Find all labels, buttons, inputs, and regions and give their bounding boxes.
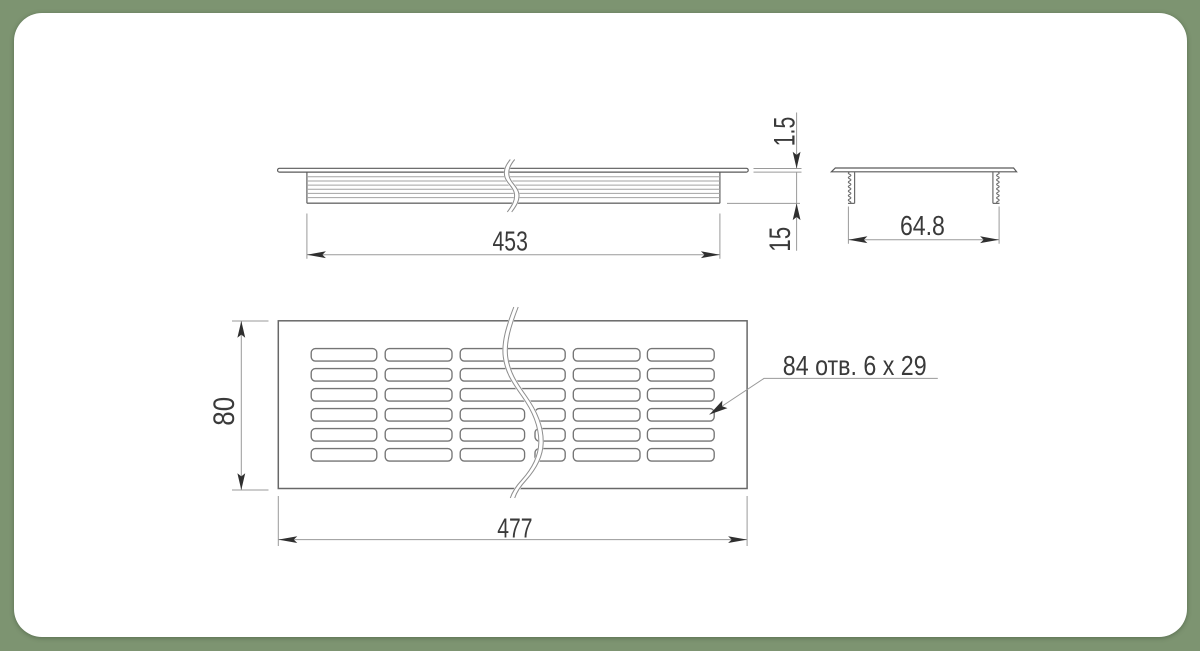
svg-text:80: 80 xyxy=(207,397,240,426)
svg-text:477: 477 xyxy=(497,514,532,544)
svg-text:453: 453 xyxy=(493,227,528,257)
svg-text:1.5: 1.5 xyxy=(769,117,801,147)
svg-text:84 отв. 6 x 29: 84 отв. 6 x 29 xyxy=(783,351,927,381)
svg-text:15: 15 xyxy=(763,227,797,252)
svg-text:64.8: 64.8 xyxy=(900,211,945,241)
